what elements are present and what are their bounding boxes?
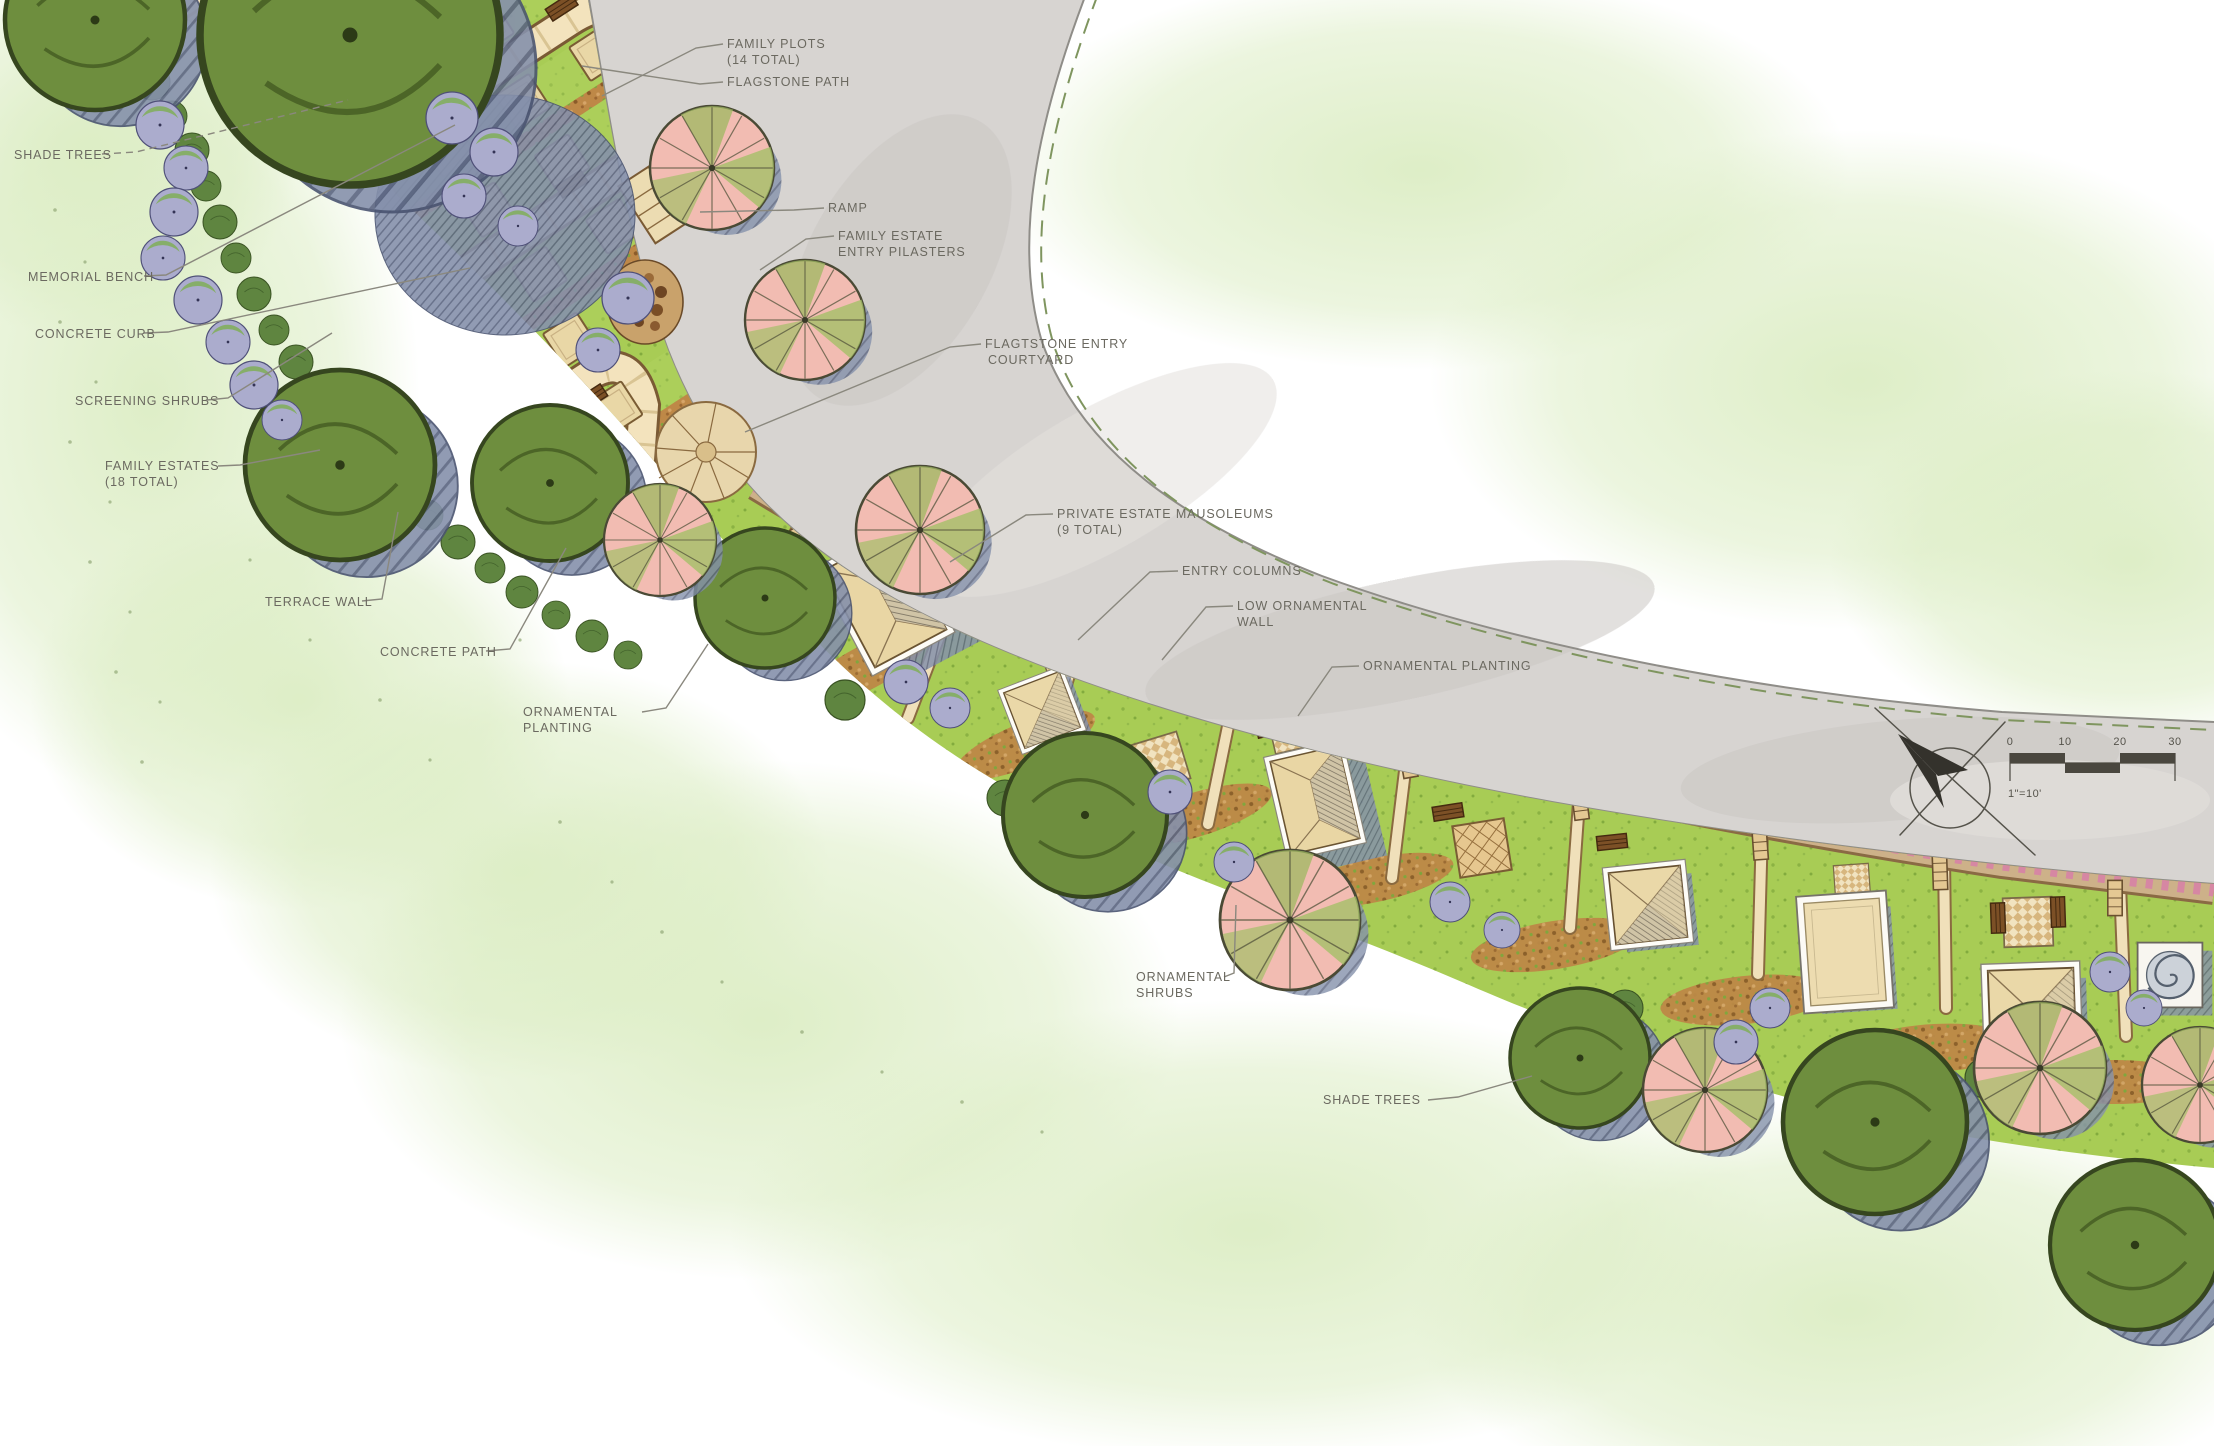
estate-bench [1990, 903, 2005, 933]
label-screening-shrubs: SCREENING SHRUBS [75, 394, 219, 408]
ornamental-tree [150, 188, 198, 236]
ornamental-shrub [930, 688, 970, 728]
ornamental-tree [576, 328, 620, 372]
label-ornamental-shrubs: ORNAMENTAL [1136, 970, 1231, 984]
mausoleum [1602, 859, 1699, 954]
ornamental-shrub [884, 660, 928, 704]
label-terrace-wall: TERRACE WALL [265, 595, 373, 609]
entry-column [2108, 880, 2122, 915]
label-entry-columns: ENTRY COLUMNS [1182, 564, 1302, 578]
ornamental-shrub [2126, 990, 2162, 1026]
ornamental-shrub [1484, 912, 1520, 948]
label-ornamental-planting-left-2: PLANTING [523, 721, 593, 735]
label-family-estate-entry-pilasters: FAMILY ESTATE [838, 229, 943, 243]
ornamental-shrub [1214, 842, 1254, 882]
ornamental-tree [442, 174, 486, 218]
shrub [221, 243, 251, 273]
shrub [259, 315, 289, 345]
ornamental-tree [230, 361, 278, 409]
label-flagstone-entry-courtyard: FLAGTSTONE ENTRY [985, 337, 1128, 351]
mausoleum [1796, 890, 1898, 1015]
shrub [542, 601, 570, 629]
estate-bench [1596, 833, 1627, 850]
shrub [475, 553, 505, 583]
ornamental-shrub [1750, 988, 1790, 1028]
label-family-estates-count: (18 TOTAL) [105, 475, 179, 489]
ornamental-tree [164, 146, 208, 190]
label-family-plots-count: (14 TOTAL) [727, 53, 801, 67]
site-plan-drawing: FAMILY PLOTS (14 TOTAL) FLAGSTONE PATH S… [0, 0, 2214, 1446]
label-family-estates: FAMILY ESTATES [105, 459, 219, 473]
site-plan-page: FAMILY PLOTS (14 TOTAL) FLAGSTONE PATH S… [0, 0, 2214, 1446]
label-low-ornamental-wall-2: WALL [1237, 615, 1274, 629]
ornamental-tree [206, 320, 250, 364]
label-ornamental-planting-right: ORNAMENTAL PLANTING [1363, 659, 1532, 673]
courtyard-pad [2003, 897, 2054, 948]
label-ornamental-planting-left: ORNAMENTAL [523, 705, 618, 719]
label-private-estate-mausoleums-2: (9 TOTAL) [1057, 523, 1123, 537]
family-plot [469, 360, 524, 415]
shrub [237, 277, 271, 311]
scale-tick-10: 10 [2058, 736, 2071, 748]
shrub [825, 680, 865, 720]
label-flagstone-entry-courtyard-2: COURTYARD [988, 353, 1074, 367]
label-flagstone-path: FLAGSTONE PATH [727, 75, 850, 89]
ornamental-tree [498, 206, 538, 246]
shrub [203, 205, 237, 239]
scale-tick-30: 30 [2168, 736, 2181, 748]
label-family-plots: FAMILY PLOTS [727, 37, 826, 51]
shrub [506, 576, 538, 608]
label-concrete-path: CONCRETE PATH [380, 645, 497, 659]
label-concrete-curb: CONCRETE CURB [35, 327, 156, 341]
ornamental-tree [602, 272, 654, 324]
entry-column [1932, 854, 1948, 890]
shrub [576, 620, 608, 652]
ornamental-tree [470, 128, 518, 176]
label-memorial-bench: MEMORIAL BENCH [28, 270, 154, 284]
label-low-ornamental-wall: LOW ORNAMENTAL [1237, 599, 1367, 613]
shrub [614, 641, 642, 669]
ornamental-tree [174, 276, 222, 324]
ornamental-tree [262, 400, 302, 440]
ornamental-shrub [1148, 770, 1192, 814]
scale-tick-20: 20 [2113, 736, 2126, 748]
label-shade-trees-bottom: SHADE TREES [1323, 1093, 1421, 1107]
trellis-pad [1452, 818, 1511, 877]
estate-bench [2050, 897, 2065, 927]
scale-note: 1"=10' [2008, 788, 2042, 800]
scale-tick-0: 0 [2007, 736, 2014, 748]
label-ornamental-shrubs-2: SHRUBS [1136, 986, 1194, 1000]
ornamental-shrub [1714, 1020, 1758, 1064]
ornamental-shrub [1430, 882, 1470, 922]
ornamental-shrub [2090, 952, 2130, 992]
label-ramp: RAMP [828, 201, 868, 215]
label-private-estate-mausoleums: PRIVATE ESTATE MAUSOLEUMS [1057, 507, 1274, 521]
label-shade-trees-left: SHADE TREES [14, 148, 112, 162]
label-family-estate-entry-pilasters-2: ENTRY PILASTERS [838, 245, 966, 259]
